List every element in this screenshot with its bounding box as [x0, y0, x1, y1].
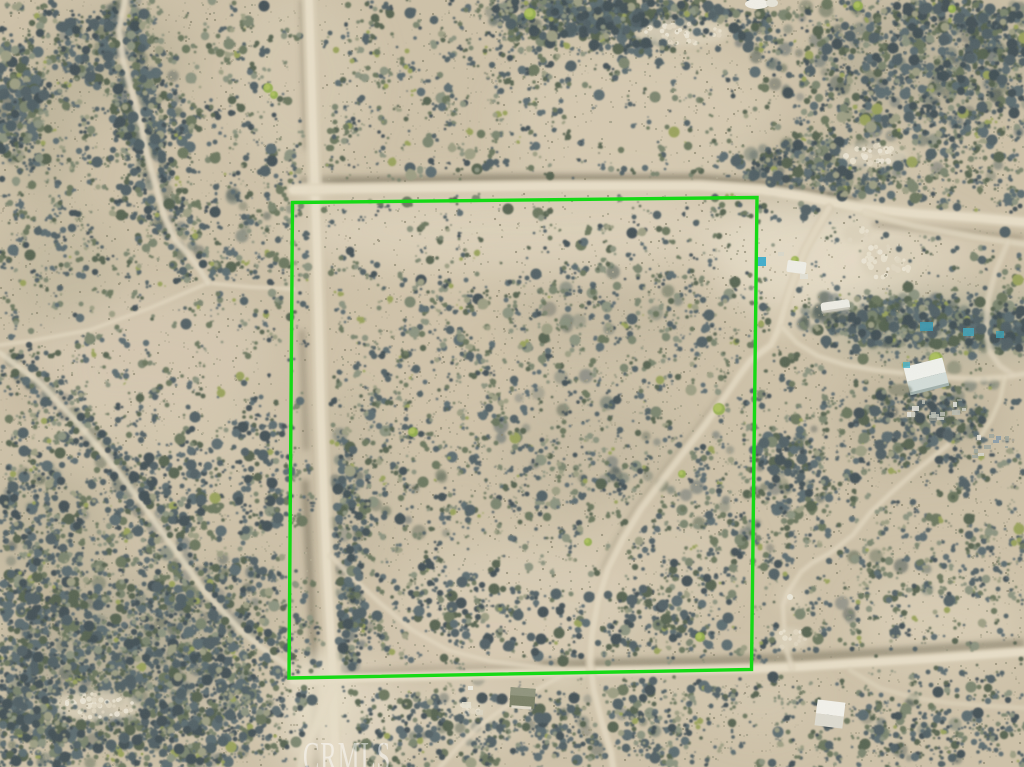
svg-text:CRMLS: CRMLS [303, 734, 391, 767]
